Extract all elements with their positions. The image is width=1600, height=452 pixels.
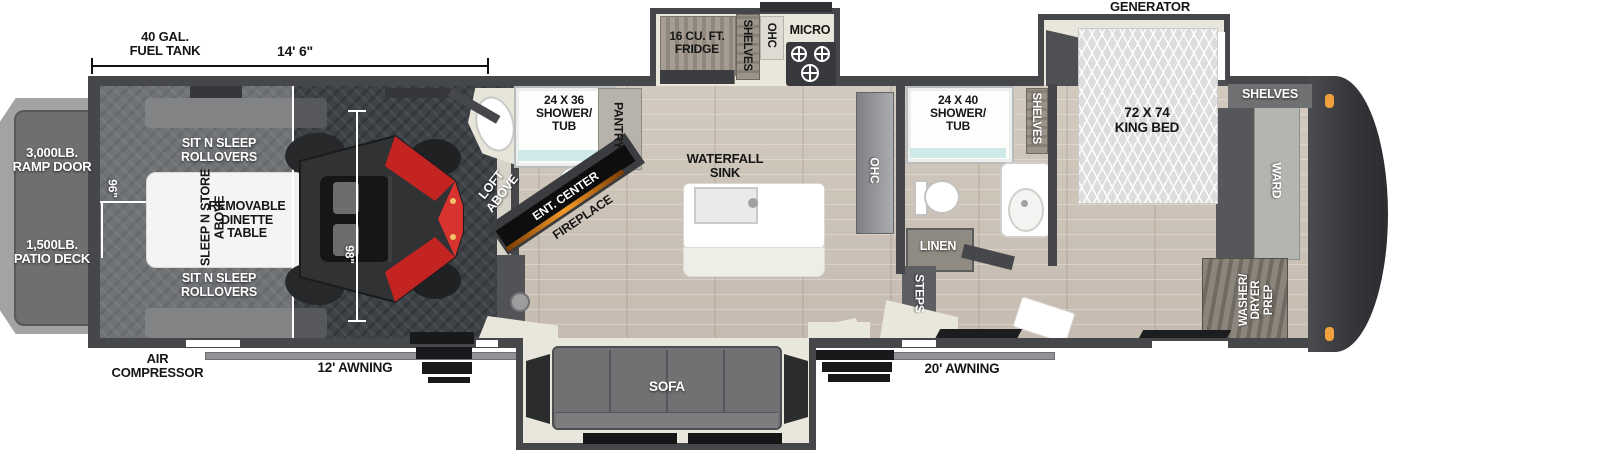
- awning-12-label: 12' AWNING: [295, 361, 415, 376]
- garage-entry-step-2: [416, 347, 472, 359]
- bed-window-right: [1218, 32, 1225, 80]
- sofa-slide-mat-1: [583, 433, 677, 444]
- top-wall-rear: [88, 76, 656, 86]
- sofa-cushion-divider-1: [609, 350, 611, 412]
- bath-shower-label: 24 X 40 SHOWER/ TUB: [912, 94, 1004, 133]
- dimension-tick-right: [487, 58, 489, 74]
- rollover-bottom-label: SIT N SLEEP ROLLOVERS: [160, 272, 278, 299]
- sofa-seat-edge: [556, 412, 778, 428]
- dimension-14-6-label: 14' 6": [252, 44, 338, 59]
- island-faucet: [748, 198, 758, 208]
- main-entry-step-3: [828, 374, 890, 382]
- sofa-slide-mat-2: [688, 433, 782, 444]
- bedroom-dresser: [1216, 108, 1254, 258]
- bath-faucet: [1021, 200, 1028, 207]
- pantry-label: PANTRY: [612, 99, 625, 151]
- stove-cooktop: [786, 42, 836, 86]
- garage-entry-step-4: [428, 377, 470, 383]
- roof-vent-garage: [385, 88, 453, 98]
- main-entry-step-1: [816, 350, 894, 360]
- marker-light-top: [1325, 94, 1334, 108]
- bottom-wall-front: [807, 338, 1310, 348]
- fridge-label: 16 CU. FT. FRIDGE: [660, 30, 734, 56]
- micro-label: MICRO: [784, 24, 836, 38]
- bath-toilet: [924, 180, 960, 214]
- baggage-door-3: [902, 340, 936, 347]
- roof-vent-rear: [190, 86, 242, 98]
- washer-dryer-label: WASHER/ DRYER PREP: [1238, 254, 1286, 346]
- fuel-tank-label: 40 GAL. FUEL TANK: [110, 30, 220, 58]
- marker-light-bottom: [1325, 327, 1334, 341]
- dinette-label: REMOVABLE DINETTE TABLE: [199, 200, 295, 241]
- sofa-label: SOFA: [617, 380, 717, 395]
- ramp-door-label: 3,000LB. RAMP DOOR: [6, 146, 98, 174]
- fridge-base-cabinet: [660, 70, 735, 84]
- baggage-door-1: [186, 340, 240, 347]
- bath-shelves-label: SHELVES: [1030, 90, 1042, 146]
- sofa-cushion-divider-3: [723, 350, 725, 412]
- dimension-tick-left: [91, 58, 93, 74]
- waterfall-sink-label: WATERFALL SINK: [650, 152, 800, 180]
- dimension-98-line: [356, 110, 358, 322]
- sofa-bolster-left: [526, 354, 550, 424]
- baggage-door-2: [476, 340, 498, 347]
- dimension-98-label: 98": [343, 232, 356, 276]
- dimension-98-tick-top: [348, 110, 366, 112]
- top-wall-mid: [834, 76, 1044, 86]
- bath-wall-left: [896, 84, 905, 274]
- baggage-door-4: [1152, 341, 1228, 348]
- garage-entry-step-3: [422, 362, 472, 374]
- floorplan-canvas: 40 GAL. FUEL TANK 14' 6" GENERATOR PREP …: [0, 0, 1600, 452]
- counter-ohc-label: OHC: [868, 145, 881, 195]
- air-compressor-label: AIR COMPRESSOR: [100, 352, 215, 380]
- kitchen-ohc-label: OHC: [765, 13, 777, 57]
- range-hood-vent: [760, 2, 832, 12]
- atv-graphic: [285, 106, 480, 332]
- dimension-96-label: 96": [106, 166, 119, 210]
- wardrobe-label: WARD: [1270, 156, 1283, 204]
- half-bath-shower-label: 24 X 36 SHOWER/ TUB: [520, 94, 608, 133]
- garage-entry-step-1: [410, 332, 474, 344]
- speaker-knob: [510, 292, 530, 312]
- linen-label: LINEN: [906, 240, 970, 254]
- front-cap: [1308, 76, 1388, 352]
- kitchen-shelves-label: SHELVES: [741, 17, 753, 73]
- awning-12-bar: [205, 352, 537, 360]
- steps-label: STEPS: [913, 268, 926, 318]
- king-bed-label: 72 X 74 KING BED: [1083, 106, 1211, 135]
- front-shelves-label: SHELVES: [1230, 88, 1310, 102]
- patio-deck-label: 1,500LB. PATIO DECK: [6, 238, 98, 266]
- rear-wall: [88, 76, 100, 348]
- awning-20-label: 20' AWNING: [901, 362, 1023, 377]
- kitchen-island-base: [683, 247, 825, 277]
- dimension-14-6-line: [91, 65, 489, 67]
- dimension-98-tick-bottom: [348, 320, 366, 322]
- bath-wall-right: [1048, 84, 1057, 266]
- dimension-96-line: [101, 201, 103, 258]
- sofa-bolster-right: [784, 354, 808, 424]
- main-entry-step-2: [822, 362, 892, 372]
- bath-shower-water: [910, 148, 1006, 158]
- entry-landing: [808, 322, 870, 338]
- bath-vanity-sink: [1008, 188, 1044, 232]
